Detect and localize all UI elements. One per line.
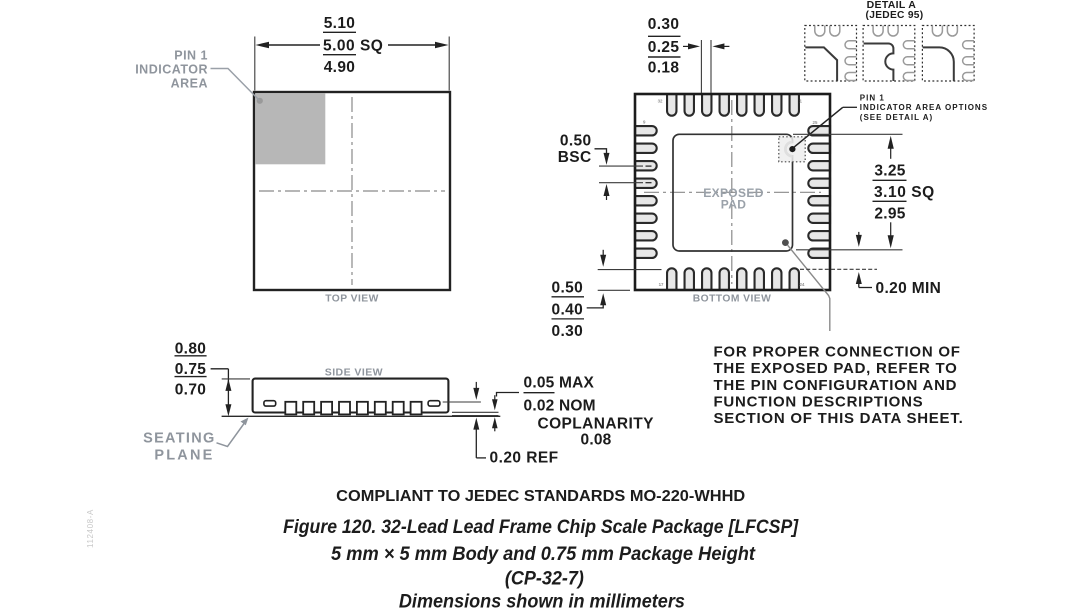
svg-text:0.25: 0.25 xyxy=(648,39,680,56)
svg-text:SEATING: SEATING xyxy=(143,430,215,446)
svg-text:SECTION OF THIS DATA SHEET.: SECTION OF THIS DATA SHEET. xyxy=(714,410,964,427)
svg-text:0.08: 0.08 xyxy=(581,432,612,449)
svg-text:PAD: PAD xyxy=(721,198,747,212)
svg-text:THE PIN CONFIGURATION AND: THE PIN CONFIGURATION AND xyxy=(714,377,958,394)
svg-text:PIN 1: PIN 1 xyxy=(174,49,208,63)
svg-text:2.95: 2.95 xyxy=(874,205,905,222)
svg-text:(JEDEC 95): (JEDEC 95) xyxy=(866,10,924,21)
svg-text:INDICATOR AREA OPTIONS: INDICATOR AREA OPTIONS xyxy=(860,103,988,112)
svg-text:PLANE: PLANE xyxy=(154,448,214,464)
svg-text:0.18: 0.18 xyxy=(648,60,680,77)
svg-text:5.10: 5.10 xyxy=(324,15,356,32)
svg-text:0.05 MAX: 0.05 MAX xyxy=(524,375,595,392)
svg-text:24: 24 xyxy=(800,282,805,287)
svg-text:0.30: 0.30 xyxy=(648,16,680,33)
svg-text:COMPLIANT TO JEDEC STANDARDS M: COMPLIANT TO JEDEC STANDARDS MO-220-WHHD xyxy=(336,488,745,505)
svg-text:FOR PROPER CONNECTION OF: FOR PROPER CONNECTION OF xyxy=(714,344,961,361)
svg-text:3.25: 3.25 xyxy=(874,163,905,180)
svg-text:0.50: 0.50 xyxy=(560,132,592,149)
svg-text:0.75: 0.75 xyxy=(175,361,207,378)
svg-text:0.50: 0.50 xyxy=(552,280,584,297)
svg-text:BSC: BSC xyxy=(558,149,592,166)
svg-text:Dimensions shown in millimeter: Dimensions shown in millimeters xyxy=(399,591,685,608)
svg-text:THE EXPOSED PAD, REFER TO: THE EXPOSED PAD, REFER TO xyxy=(714,360,958,377)
svg-text:0.70: 0.70 xyxy=(175,382,207,399)
svg-text:0.02 NOM: 0.02 NOM xyxy=(524,398,596,415)
svg-text:0.30: 0.30 xyxy=(552,323,584,340)
svg-text:COPLANARITY: COPLANARITY xyxy=(538,416,655,433)
svg-text:TOP VIEW: TOP VIEW xyxy=(325,294,379,305)
svg-text:0.20 REF: 0.20 REF xyxy=(490,450,559,467)
svg-text:0.80: 0.80 xyxy=(175,340,207,357)
svg-text:5 mm × 5 mm Body and 0.75 mm P: 5 mm × 5 mm Body and 0.75 mm Package Hei… xyxy=(331,543,756,565)
svg-text:3.10 SQ: 3.10 SQ xyxy=(874,184,935,201)
svg-text:FUNCTION DESCRIPTIONS: FUNCTION DESCRIPTIONS xyxy=(714,393,924,410)
svg-text:AREA: AREA xyxy=(171,77,208,91)
svg-text:PIN 1: PIN 1 xyxy=(860,94,885,103)
svg-text:(CP-32-7): (CP-32-7) xyxy=(505,568,584,590)
svg-text:112408-A: 112408-A xyxy=(86,509,95,548)
svg-text:(SEE DETAIL A): (SEE DETAIL A) xyxy=(860,113,933,122)
svg-text:5.00 SQ: 5.00 SQ xyxy=(323,38,383,55)
svg-text:17: 17 xyxy=(659,282,664,287)
svg-text:BOTTOM VIEW: BOTTOM VIEW xyxy=(693,294,772,305)
svg-text:4.90: 4.90 xyxy=(324,59,356,76)
svg-text:0.20 MIN: 0.20 MIN xyxy=(876,280,942,297)
svg-text:INDICATOR: INDICATOR xyxy=(135,63,208,77)
svg-text:32: 32 xyxy=(658,98,663,103)
svg-text:0.40: 0.40 xyxy=(552,302,584,319)
svg-text:Figure 120. 32-Lead Lead Frame: Figure 120. 32-Lead Lead Frame Chip Scal… xyxy=(283,516,799,538)
svg-text:25: 25 xyxy=(813,120,818,125)
svg-text:SIDE VIEW: SIDE VIEW xyxy=(325,366,383,378)
